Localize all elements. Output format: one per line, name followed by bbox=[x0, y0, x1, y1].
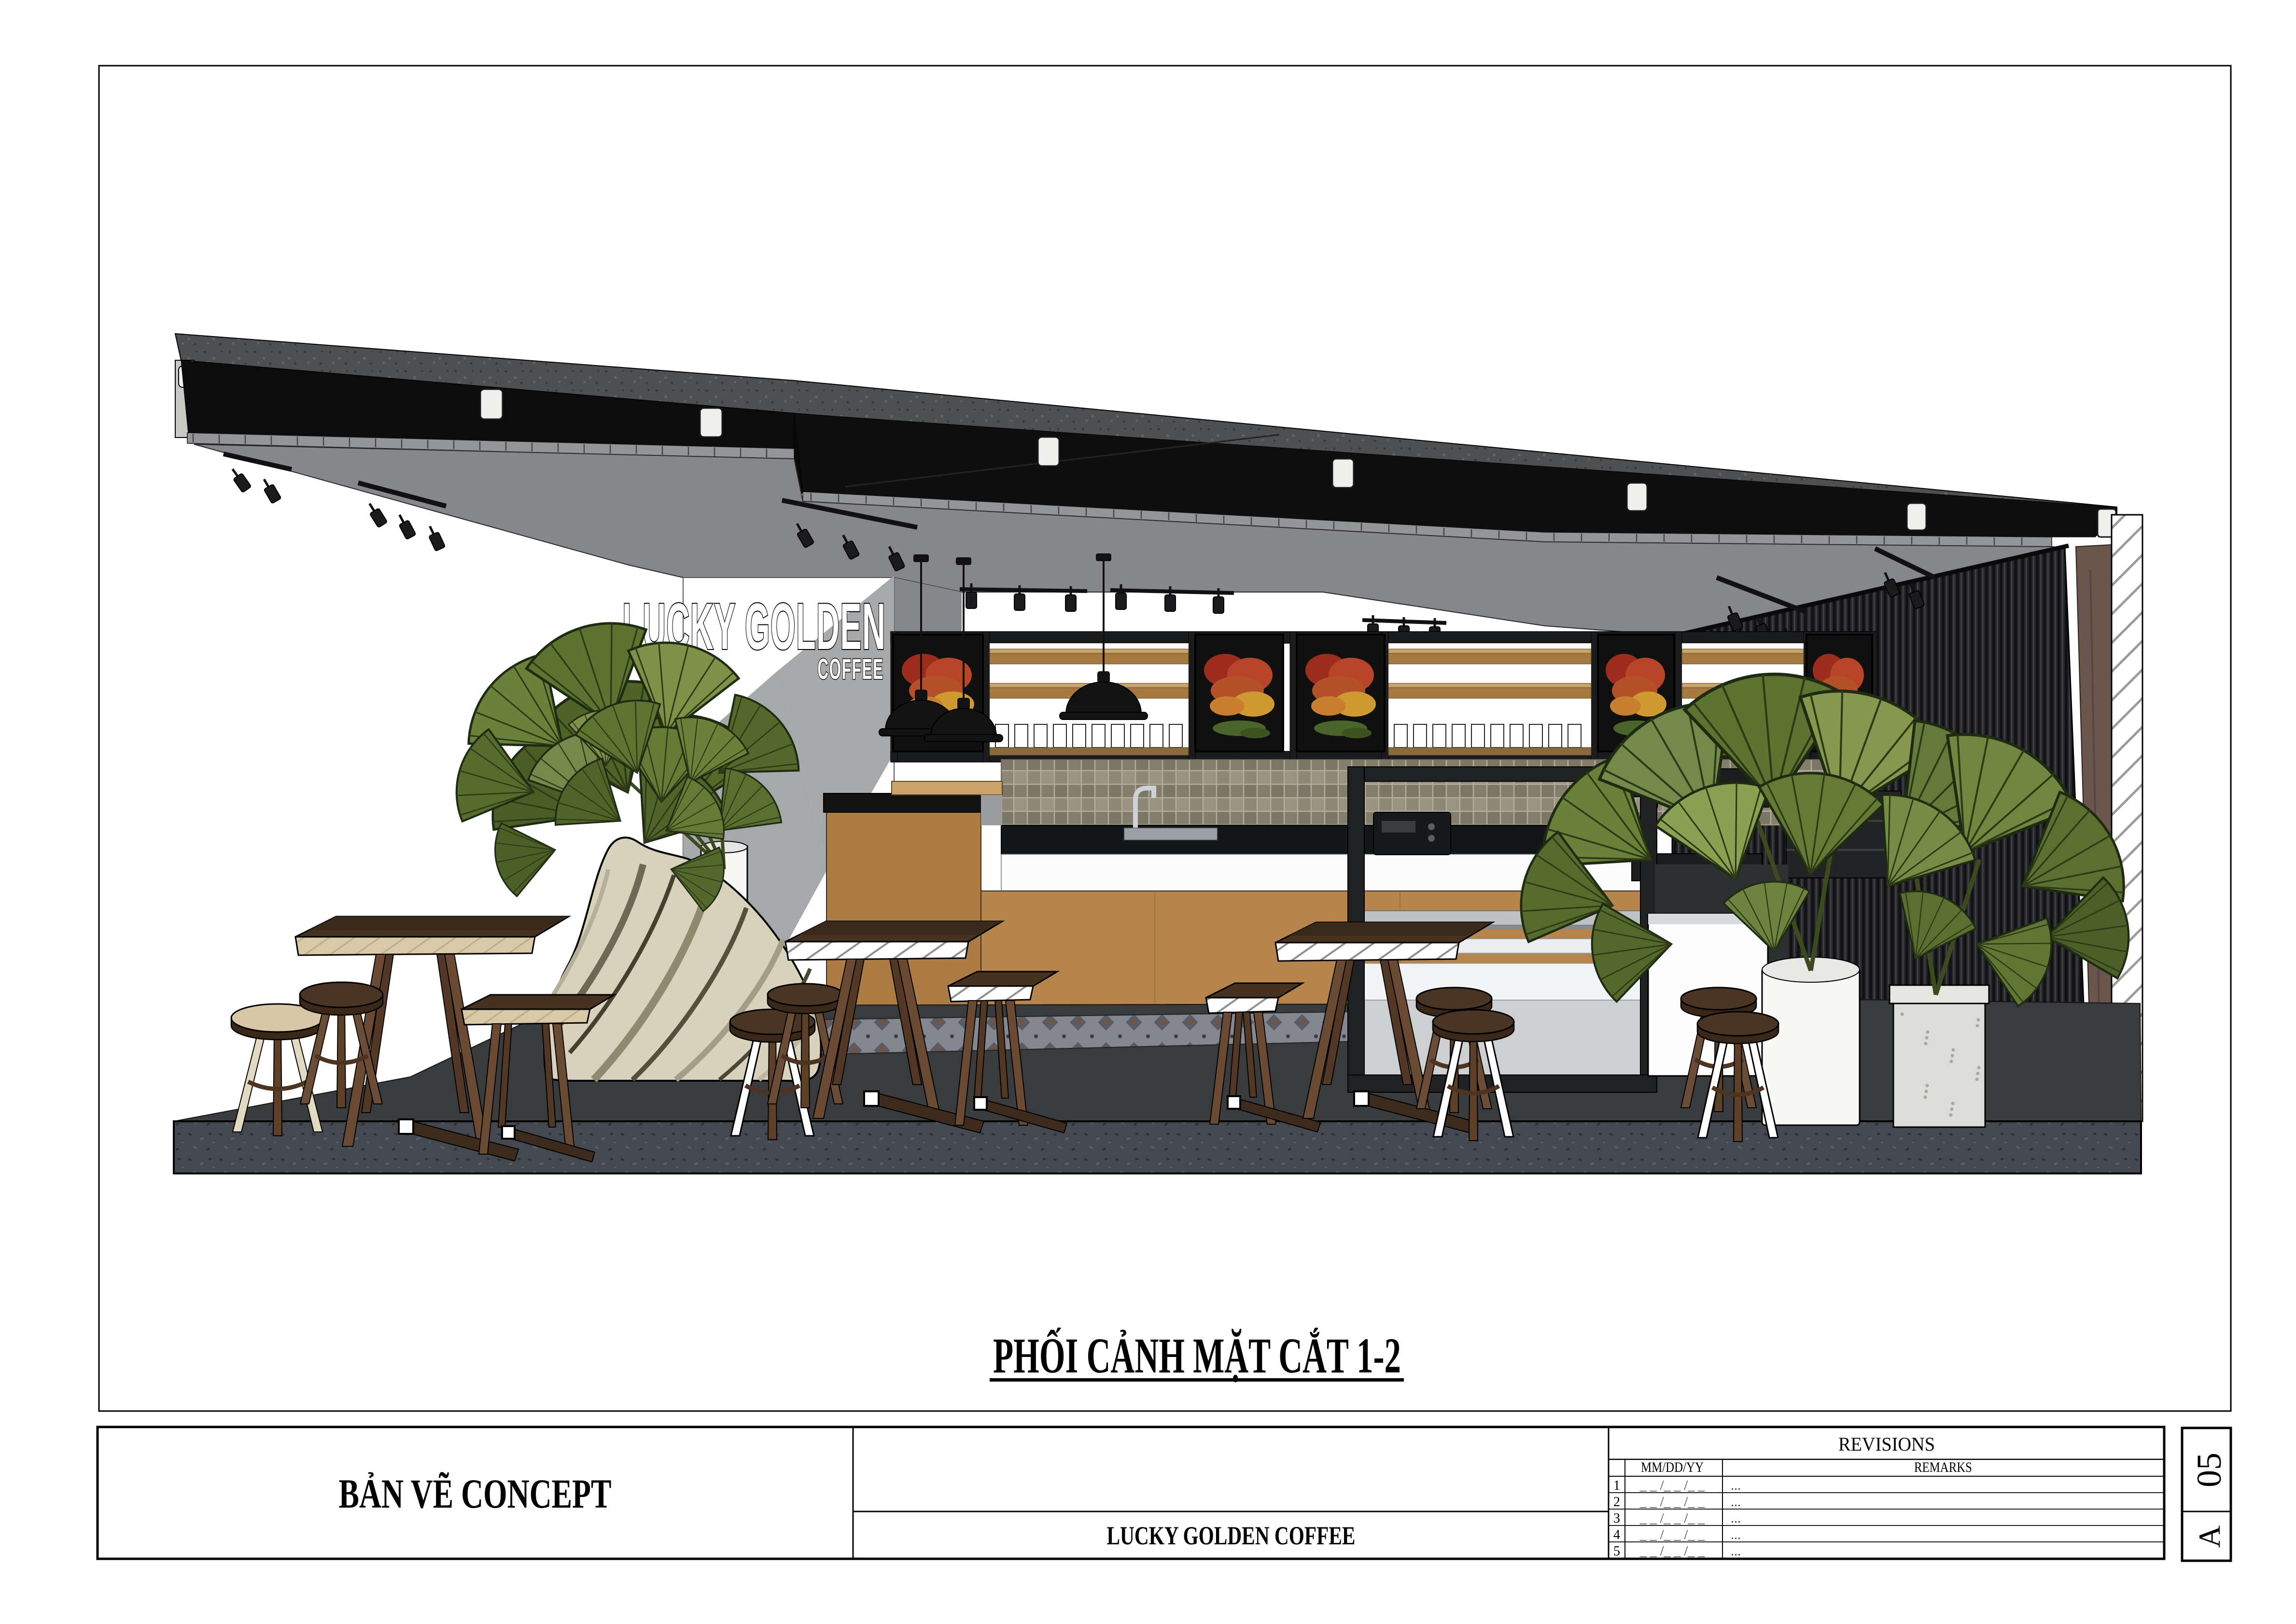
svg-text:...: ... bbox=[1731, 1511, 1741, 1526]
svg-text:REMARKS: REMARKS bbox=[1914, 1459, 1972, 1475]
svg-text:COFFEE: COFFEE bbox=[817, 653, 884, 685]
svg-text:_ _ /_ _ /_ _: _ _ /_ _ /_ _ bbox=[1639, 1511, 1706, 1526]
svg-text:5: 5 bbox=[1613, 1544, 1620, 1559]
svg-text:2: 2 bbox=[1613, 1495, 1620, 1510]
svg-text:BẢN VẼ CONCEPT: BẢN VẼ CONCEPT bbox=[339, 1470, 612, 1517]
svg-text:_ _ /_ _ /_ _: _ _ /_ _ /_ _ bbox=[1639, 1527, 1706, 1542]
svg-text:05: 05 bbox=[2190, 1453, 2228, 1487]
svg-text:_ _ /_ _ /_ _: _ _ /_ _ /_ _ bbox=[1639, 1544, 1706, 1559]
svg-text:...: ... bbox=[1731, 1495, 1741, 1510]
svg-text:_ _ /_ _ /_ _: _ _ /_ _ /_ _ bbox=[1639, 1478, 1706, 1493]
svg-text:PHỐI CẢNH MẶT CẮT 1-2: PHỐI CẢNH MẶT CẮT 1-2 bbox=[993, 1327, 1401, 1384]
svg-text:MM/DD/YY: MM/DD/YY bbox=[1641, 1459, 1704, 1475]
svg-text:4: 4 bbox=[1613, 1527, 1620, 1542]
svg-text:LUCKY GOLDEN COFFEE: LUCKY GOLDEN COFFEE bbox=[1107, 1521, 1356, 1550]
svg-text:1: 1 bbox=[1613, 1478, 1620, 1493]
svg-text:...: ... bbox=[1731, 1544, 1741, 1559]
svg-text:A: A bbox=[2192, 1525, 2226, 1548]
svg-text:3: 3 bbox=[1613, 1511, 1620, 1526]
svg-text:...: ... bbox=[1731, 1527, 1741, 1542]
svg-text:REVISIONS: REVISIONS bbox=[1838, 1433, 1935, 1455]
svg-text:...: ... bbox=[1731, 1478, 1741, 1493]
svg-text:_ _ /_ _ /_ _: _ _ /_ _ /_ _ bbox=[1639, 1495, 1706, 1510]
